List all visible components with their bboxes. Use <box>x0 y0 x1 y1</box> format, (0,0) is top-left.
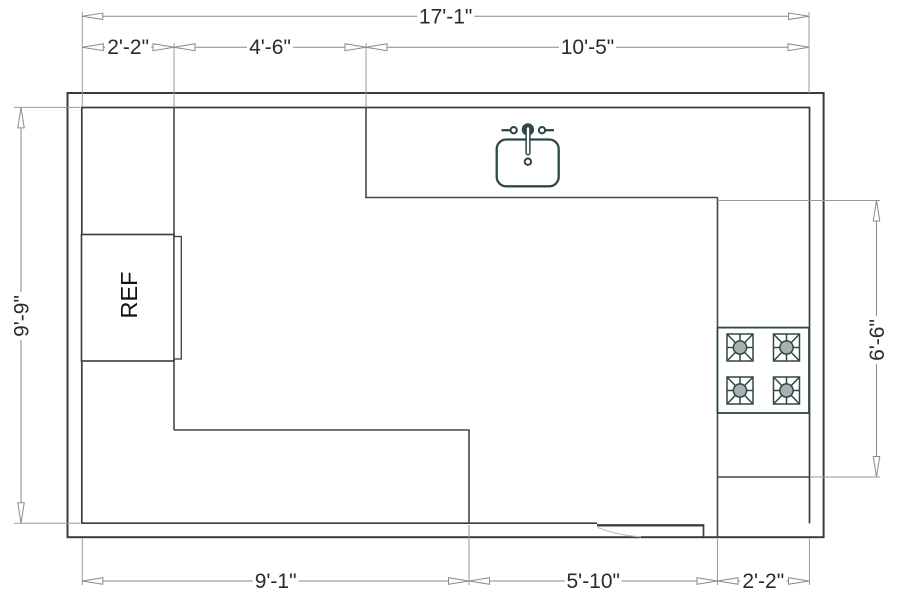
svg-text:17'-1": 17'-1" <box>419 5 473 28</box>
svg-text:5'-10": 5'-10" <box>567 570 621 593</box>
svg-text:4'-6": 4'-6" <box>249 36 291 59</box>
svg-text:10'-5": 10'-5" <box>561 36 615 59</box>
svg-text:6'-6": 6'-6" <box>866 319 889 361</box>
svg-text:REF: REF <box>116 272 142 319</box>
svg-text:2'-2": 2'-2" <box>107 36 149 59</box>
svg-text:9'-9": 9'-9" <box>11 295 34 337</box>
svg-text:9'-1": 9'-1" <box>255 570 297 593</box>
svg-text:2'-2": 2'-2" <box>742 570 784 593</box>
